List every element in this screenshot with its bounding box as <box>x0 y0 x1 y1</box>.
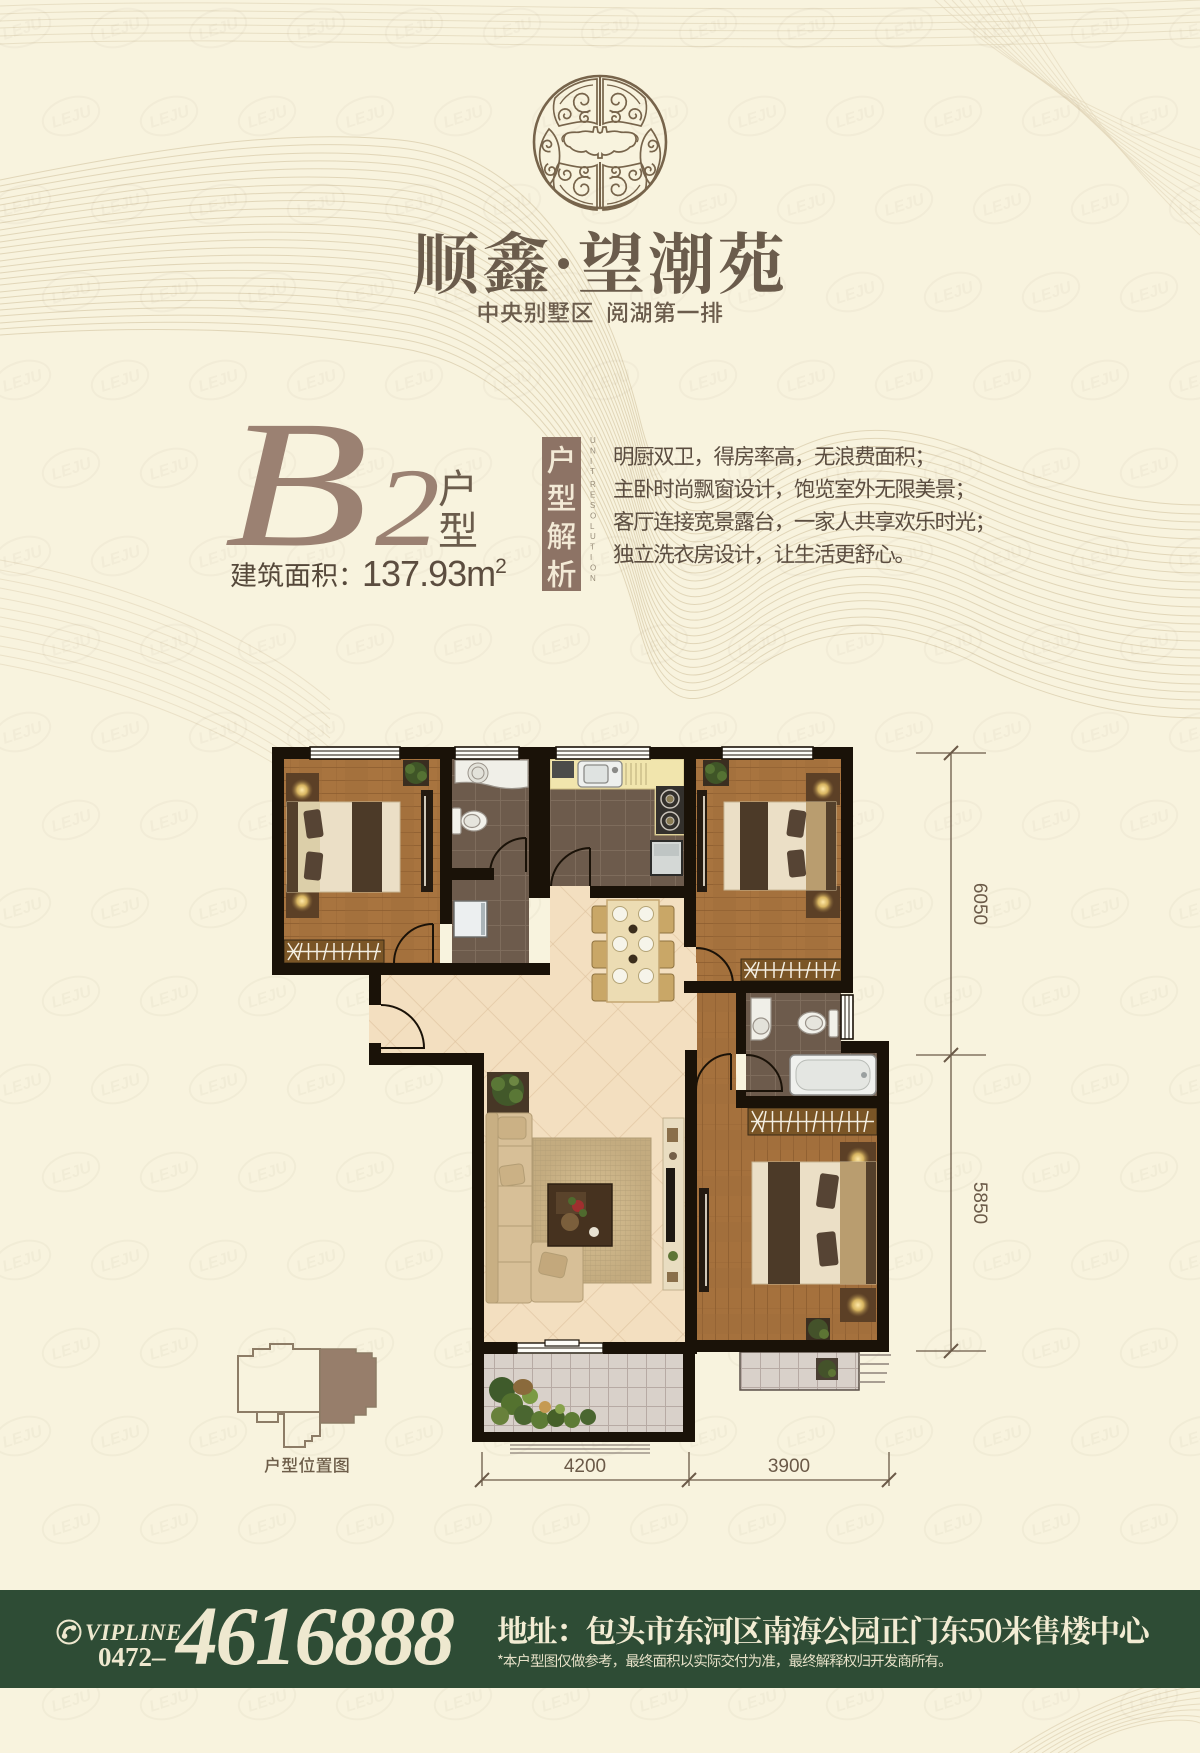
svg-text:4616888: 4616888 <box>174 1590 454 1683</box>
svg-text:4200: 4200 <box>564 1456 606 1477</box>
svg-text:0472–: 0472– <box>98 1642 166 1672</box>
svg-text:3900: 3900 <box>768 1456 810 1477</box>
svg-text:B: B <box>224 383 369 585</box>
svg-text:2: 2 <box>375 446 440 570</box>
svg-text:137.93m2: 137.93m2 <box>362 553 506 594</box>
svg-text:T: T <box>590 467 595 476</box>
svg-text:N: N <box>590 574 596 583</box>
svg-text:6050: 6050 <box>969 883 990 925</box>
svg-text:5850: 5850 <box>969 1182 990 1224</box>
